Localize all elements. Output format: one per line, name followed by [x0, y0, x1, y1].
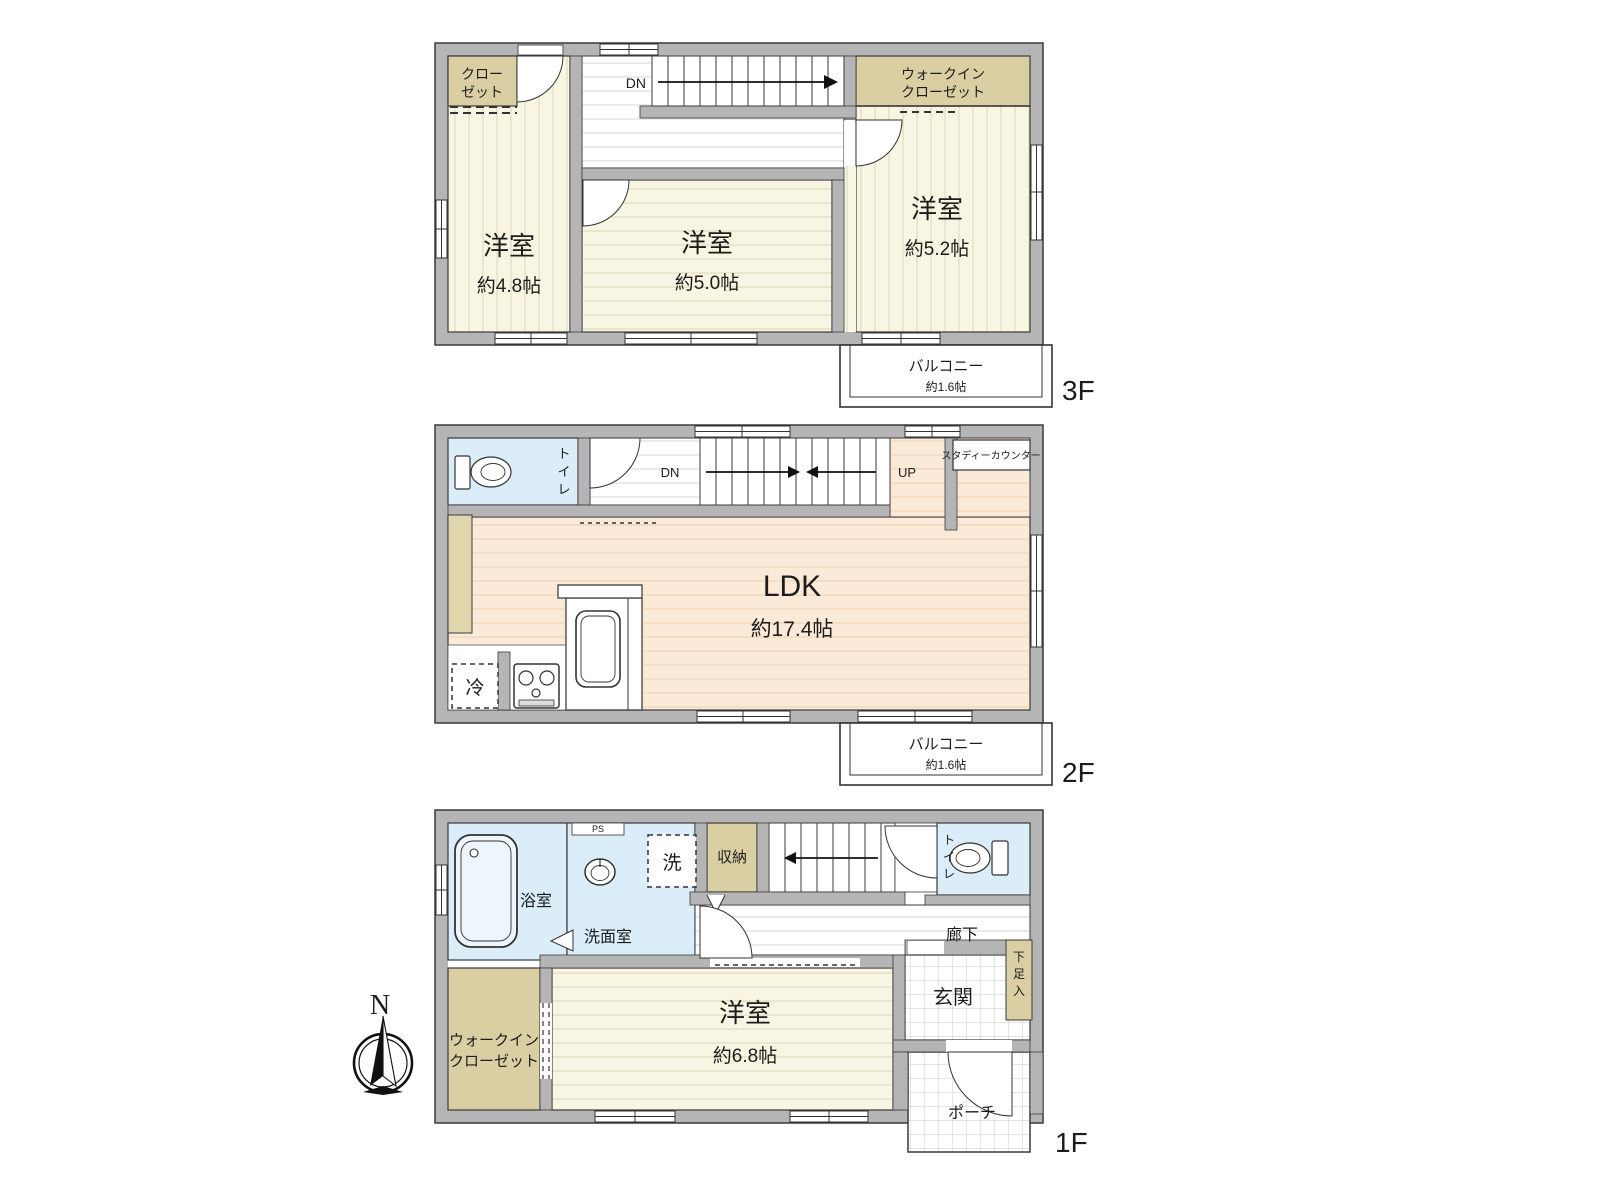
balcony-size-3f: 約1.6帖 — [926, 379, 967, 394]
balcony-name-3f: バルコニー — [909, 358, 984, 375]
shoe-label-1f-3: 入 — [1013, 984, 1025, 998]
corridor-label-1f: 廊下 — [946, 926, 978, 944]
entrance-label-1f: 玄関 — [933, 986, 973, 1009]
floor-label-3f: 3F — [1062, 375, 1095, 406]
bedroom-right-name-3f: 洋室 — [911, 194, 963, 224]
kitchen-island-2f — [558, 585, 642, 710]
closet-label-2-3f: ゼット — [461, 84, 503, 100]
sink-icon-1f — [585, 859, 615, 885]
shoe-label-1f-2: 足 — [1013, 967, 1025, 981]
ps-label-1f: PS — [592, 824, 604, 834]
wic-label-1-1f: ウォークイン — [449, 1032, 539, 1049]
bedroom-size-1f: 約6.8帖 — [713, 1045, 777, 1067]
floor-2f-plan: DN UP ト イ レ 冷 — [435, 425, 1095, 788]
floor-3f-plan: DN バルコニー 約1.6帖 クロー ゼット ウォークイン — [435, 43, 1095, 407]
shoe-label-1f-1: 下 — [1013, 950, 1025, 964]
balcony-3f: バルコニー 約1.6帖 — [840, 345, 1052, 407]
stairs-dn-label-3f: DN — [626, 75, 646, 91]
floorplan-svg: DN バルコニー 約1.6帖 クロー ゼット ウォークイン — [0, 0, 1600, 1200]
compass: N — [354, 990, 412, 1095]
ldk-name-2f: LDK — [763, 570, 821, 603]
floor-1f-plan: PS 洗 UP ト イ レ 下 足 — [435, 810, 1088, 1158]
balcony-name-2f: バルコニー — [909, 736, 984, 753]
compass-north-label: N — [370, 990, 390, 1021]
washroom-label-1f: 洗面室 — [584, 928, 632, 946]
compass-needle-light — [383, 1016, 396, 1086]
toilet-icon-2f — [455, 456, 511, 489]
closet-label-1-3f: クロー — [461, 66, 503, 82]
toilet-label-1f-3: レ — [943, 867, 955, 881]
sink-icon-2f — [576, 611, 620, 687]
laundry-label-1f: 洗 — [662, 852, 681, 874]
porch-label-1f: ポーチ — [948, 1104, 996, 1122]
stairs-3f: DN — [626, 56, 844, 106]
bathtub-icon-1f — [455, 835, 517, 947]
toilet-label-2f-3: レ — [557, 482, 570, 497]
ldk-size-2f: 約17.4帖 — [751, 618, 834, 641]
toilet-label-1f-1: ト — [943, 833, 955, 847]
floorplan-canvas: DN バルコニー 約1.6帖 クロー ゼット ウォークイン — [0, 0, 1600, 1200]
wic-label-1-3f: ウォークイン — [901, 66, 985, 82]
toilet-label-2f-2: イ — [557, 464, 570, 479]
stairs-up-label-2f: UP — [898, 465, 916, 480]
room-bedroom-1f — [552, 968, 893, 1110]
toilet-icon-1f — [950, 841, 1008, 875]
study-counter-label-2f: スタディーカウンター — [941, 449, 1040, 462]
fridge-label-2f: 冷 — [465, 677, 484, 699]
balcony-size-2f: 約1.6帖 — [926, 757, 967, 772]
bedroom-center-name-3f: 洋室 — [681, 228, 733, 258]
toilet-label-1f-2: イ — [943, 850, 955, 864]
floor-label-1f: 1F — [1055, 1127, 1088, 1158]
bedroom-center-size-3f: 約5.0帖 — [675, 272, 739, 294]
stove-icon-2f — [514, 664, 559, 708]
bedroom-left-size-3f: 約4.8帖 — [477, 275, 541, 297]
bath-label-1f: 浴室 — [520, 892, 552, 910]
wic-label-2-3f: クローゼット — [901, 84, 985, 100]
wic-label-2-1f: クローゼット — [449, 1053, 539, 1070]
counter-2f — [448, 515, 472, 633]
compass-needle-dark — [370, 1016, 383, 1086]
bedroom-name-1f: 洋室 — [719, 998, 771, 1028]
toilet-label-2f-1: ト — [557, 446, 570, 461]
bedroom-right-size-3f: 約5.2帖 — [905, 238, 969, 260]
stairs-dn-label-2f: DN — [661, 465, 680, 480]
storage-label-1f: 収納 — [717, 849, 747, 866]
floor-label-2f: 2F — [1062, 757, 1095, 788]
bedroom-left-name-3f: 洋室 — [483, 231, 535, 261]
balcony-2f: バルコニー 約1.6帖 — [840, 723, 1052, 785]
